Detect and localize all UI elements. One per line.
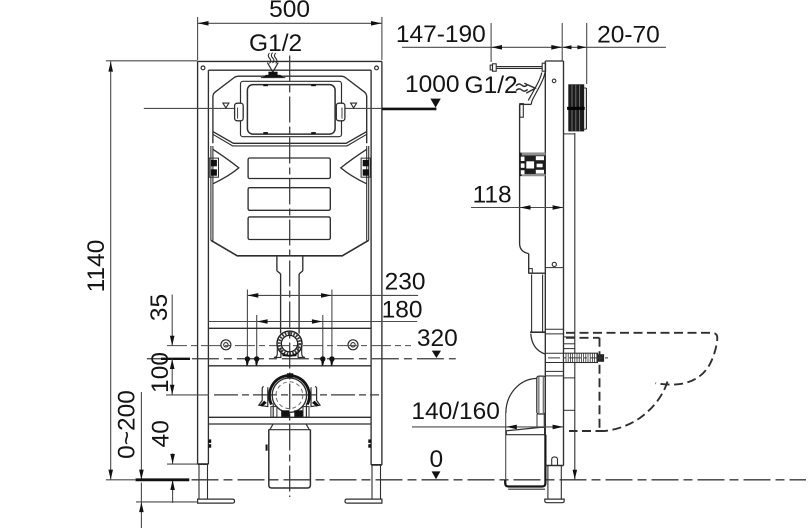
svg-text:140/160: 140/160 [411, 398, 500, 425]
svg-text:35: 35 [146, 294, 173, 321]
svg-text:1140: 1140 [83, 240, 110, 293]
svg-text:230: 230 [385, 269, 426, 296]
svg-text:320: 320 [417, 325, 458, 352]
svg-text:0~200: 0~200 [114, 390, 141, 459]
svg-text:500: 500 [269, 0, 310, 23]
svg-text:20-70: 20-70 [597, 21, 660, 48]
svg-text:147-190: 147-190 [396, 21, 486, 48]
svg-text:G1/2: G1/2 [249, 30, 302, 57]
svg-text:40: 40 [148, 420, 175, 447]
svg-text:180: 180 [382, 296, 423, 323]
svg-text:118: 118 [473, 181, 512, 208]
svg-text:100: 100 [147, 352, 174, 393]
svg-text:1000: 1000 [405, 71, 460, 98]
svg-text:G1/2: G1/2 [465, 72, 518, 99]
svg-text:0: 0 [429, 446, 443, 473]
